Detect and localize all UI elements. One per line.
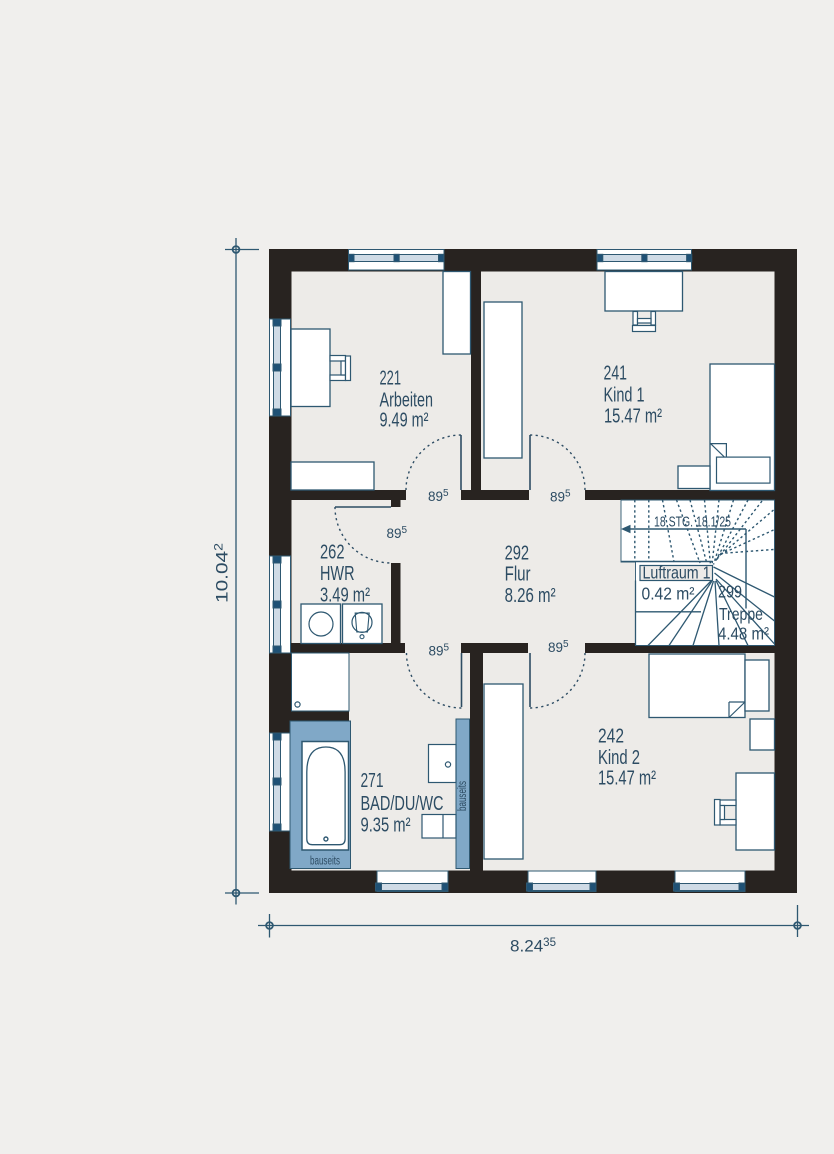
svg-text:Kind 2: Kind 2 [598,747,640,769]
svg-text:10.042: 10.042 [213,543,232,603]
svg-text:4.48 m²: 4.48 m² [718,624,769,644]
svg-text:221: 221 [380,368,402,390]
svg-text:Kind 1: Kind 1 [604,384,645,406]
svg-text:8.26 m²: 8.26 m² [505,585,556,607]
svg-text:Luftraum 1: Luftraum 1 [643,563,711,583]
svg-text:242: 242 [598,726,624,748]
svg-text:9.35 m²: 9.35 m² [361,815,411,837]
svg-text:bauseits: bauseits [457,781,469,811]
svg-text:bauseits: bauseits [310,856,340,868]
svg-text:0.42 m²: 0.42 m² [642,584,695,604]
svg-text:Flur: Flur [505,564,531,586]
svg-text:BAD/DU/WC: BAD/DU/WC [361,793,444,815]
svg-text:241: 241 [604,363,628,385]
svg-text:271: 271 [361,770,384,792]
svg-text:Arbeiten: Arbeiten [380,390,434,412]
svg-text:9.49 m²: 9.49 m² [380,410,429,432]
svg-text:18 STG. 18.1/25: 18 STG. 18.1/25 [654,515,731,531]
svg-text:262: 262 [320,542,345,564]
svg-text:299: 299 [718,582,742,602]
svg-text:HWR: HWR [320,563,355,585]
svg-text:15.47 m²: 15.47 m² [598,768,656,790]
svg-text:3.49 m²: 3.49 m² [320,585,370,607]
svg-text:15.47 m²: 15.47 m² [604,405,662,427]
svg-text:292: 292 [505,543,529,565]
svg-text:Treppe: Treppe [719,604,763,624]
